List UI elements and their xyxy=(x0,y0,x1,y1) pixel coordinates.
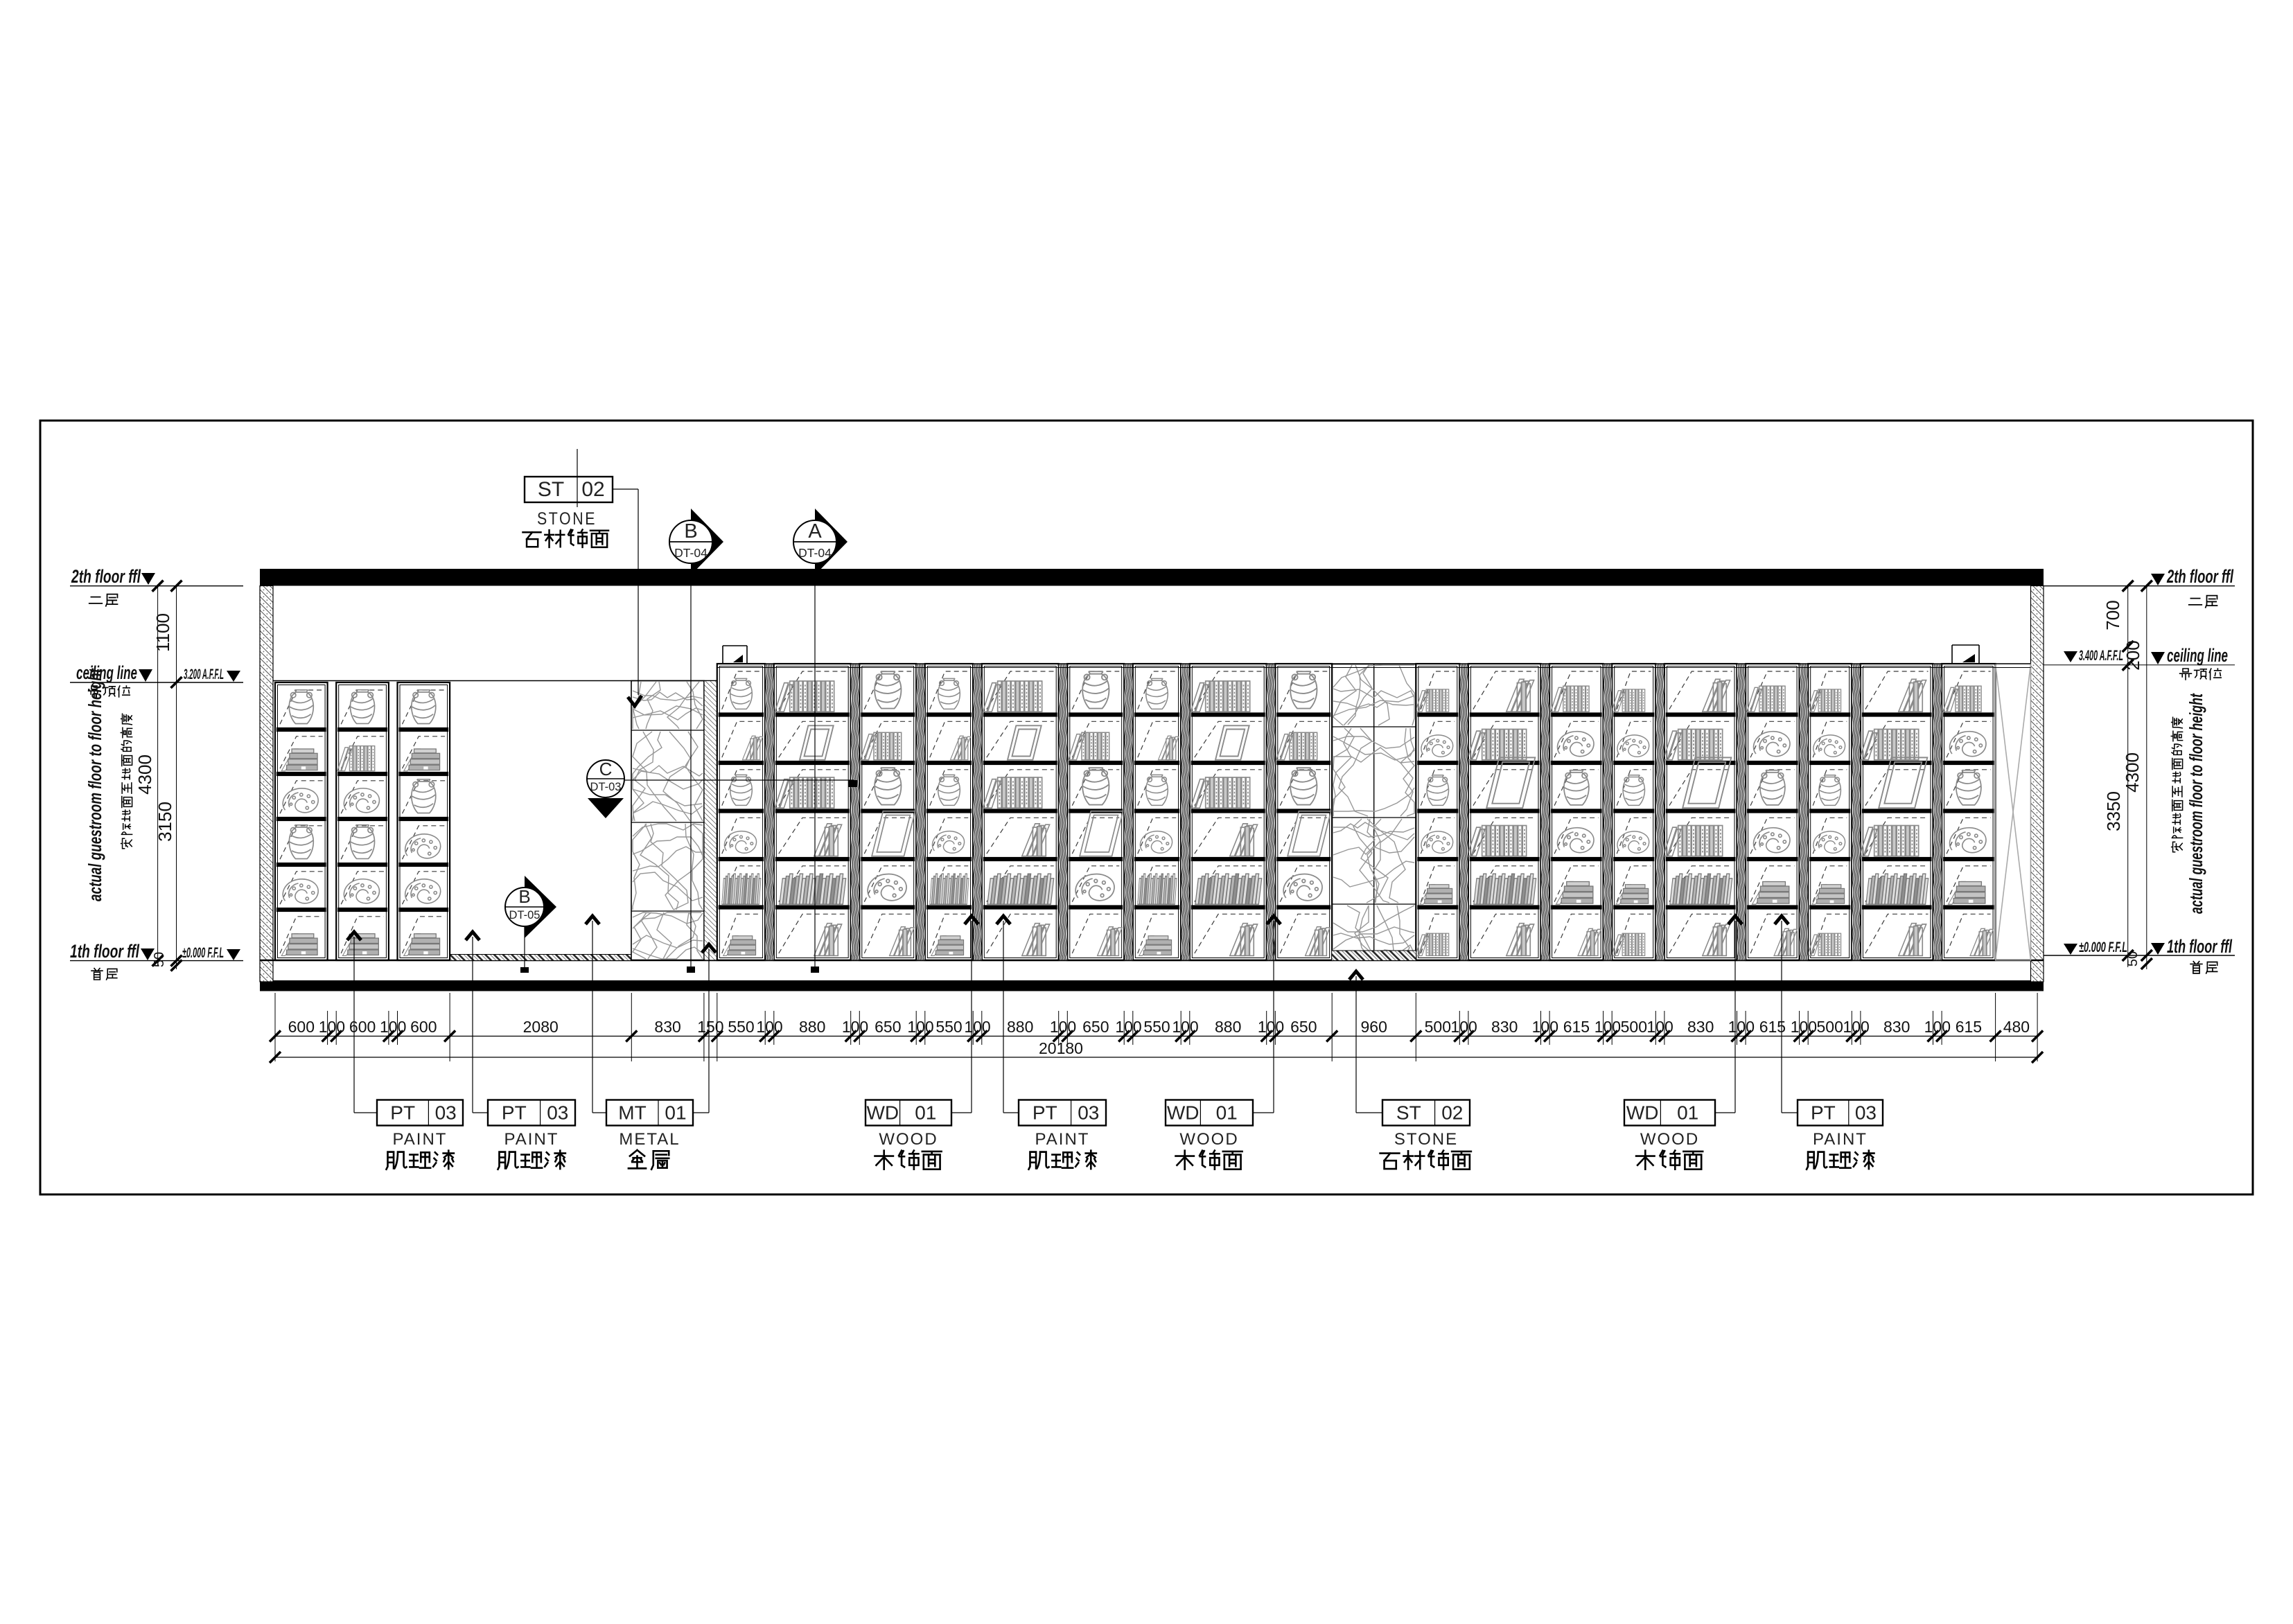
svg-text:880: 880 xyxy=(799,1018,825,1036)
svg-text:03: 03 xyxy=(435,1102,457,1124)
svg-text:600: 600 xyxy=(349,1018,376,1036)
svg-text:100: 100 xyxy=(1924,1018,1951,1036)
svg-text:100: 100 xyxy=(380,1018,406,1036)
svg-text:ST: ST xyxy=(538,478,564,501)
svg-text:02: 02 xyxy=(1441,1102,1463,1124)
svg-text:PT: PT xyxy=(1033,1102,1057,1124)
svg-text:1th floor ffl: 1th floor ffl xyxy=(70,941,139,962)
svg-text:100: 100 xyxy=(1172,1018,1198,1036)
svg-text:METAL: METAL xyxy=(619,1130,680,1149)
svg-text:50: 50 xyxy=(2125,951,2141,967)
svg-text:ST: ST xyxy=(1396,1102,1421,1124)
svg-text:880: 880 xyxy=(1215,1018,1241,1036)
svg-text:4300: 4300 xyxy=(134,754,155,795)
svg-text:2th floor ffl: 2th floor ffl xyxy=(2166,566,2233,587)
svg-text:100: 100 xyxy=(1258,1018,1284,1036)
svg-text:100: 100 xyxy=(1450,1018,1477,1036)
svg-text:960: 960 xyxy=(1361,1018,1387,1036)
svg-text:100: 100 xyxy=(1843,1018,1869,1036)
svg-text:500: 500 xyxy=(1425,1018,1451,1036)
svg-text:DT-05: DT-05 xyxy=(509,909,541,921)
svg-text:615: 615 xyxy=(1759,1018,1786,1036)
svg-text:01: 01 xyxy=(665,1102,686,1124)
svg-text:615: 615 xyxy=(1563,1018,1590,1036)
svg-text:650: 650 xyxy=(875,1018,901,1036)
svg-text:actual guestroom floor to floo: actual guestroom floor to floor height xyxy=(85,668,105,901)
svg-text:2th floor ffl: 2th floor ffl xyxy=(71,566,141,587)
svg-text:03: 03 xyxy=(547,1102,568,1124)
svg-text:100: 100 xyxy=(1532,1018,1558,1036)
svg-text:DT-04: DT-04 xyxy=(674,546,708,560)
svg-text:WD: WD xyxy=(1167,1102,1200,1124)
svg-text:PAINT: PAINT xyxy=(393,1130,448,1149)
svg-text:100: 100 xyxy=(1594,1018,1621,1036)
svg-text:C: C xyxy=(599,759,613,779)
svg-text:700: 700 xyxy=(2102,600,2123,630)
svg-text:4300: 4300 xyxy=(2122,752,2143,793)
svg-text:PT: PT xyxy=(390,1102,415,1124)
svg-text:1100: 1100 xyxy=(152,613,173,652)
svg-text:2080: 2080 xyxy=(523,1018,559,1036)
svg-text:880: 880 xyxy=(1007,1018,1033,1036)
svg-text:100: 100 xyxy=(964,1018,990,1036)
svg-text:500: 500 xyxy=(1817,1018,1843,1036)
svg-text:830: 830 xyxy=(1687,1018,1714,1036)
svg-text:480: 480 xyxy=(2003,1018,2030,1036)
svg-text:WOOD: WOOD xyxy=(879,1130,938,1149)
svg-text:830: 830 xyxy=(654,1018,680,1036)
svg-text:PAINT: PAINT xyxy=(1035,1130,1090,1149)
svg-text:100: 100 xyxy=(1115,1018,1141,1036)
svg-text:100: 100 xyxy=(842,1018,868,1036)
svg-text:01: 01 xyxy=(1216,1102,1238,1124)
svg-text:550: 550 xyxy=(728,1018,754,1036)
svg-text:3350: 3350 xyxy=(2103,791,2124,831)
svg-text:3150: 3150 xyxy=(155,802,175,842)
svg-text:PT: PT xyxy=(502,1102,527,1124)
svg-text:WD: WD xyxy=(1626,1102,1659,1124)
svg-text:100: 100 xyxy=(1050,1018,1076,1036)
svg-text:100: 100 xyxy=(319,1018,345,1036)
svg-text:830: 830 xyxy=(1491,1018,1518,1036)
svg-text:600: 600 xyxy=(288,1018,315,1036)
svg-text:MT: MT xyxy=(618,1102,646,1124)
svg-text:WOOD: WOOD xyxy=(1179,1130,1238,1149)
svg-text:100: 100 xyxy=(1728,1018,1755,1036)
svg-text:WOOD: WOOD xyxy=(1640,1130,1699,1149)
svg-text:±0.000 F.F.L: ±0.000 F.F.L xyxy=(182,945,224,961)
svg-text:B: B xyxy=(518,886,530,907)
svg-text:600: 600 xyxy=(410,1018,437,1036)
svg-text:830: 830 xyxy=(1883,1018,1910,1036)
svg-text:650: 650 xyxy=(1082,1018,1109,1036)
svg-text:650: 650 xyxy=(1290,1018,1317,1036)
svg-text:150: 150 xyxy=(697,1018,723,1036)
svg-text:200: 200 xyxy=(2123,640,2143,670)
svg-text:ceiling line: ceiling line xyxy=(2167,645,2228,666)
svg-text:01: 01 xyxy=(915,1102,936,1124)
svg-text:100: 100 xyxy=(907,1018,933,1036)
svg-text:500: 500 xyxy=(1621,1018,1647,1036)
svg-text:DT-04: DT-04 xyxy=(798,546,832,560)
svg-text:100: 100 xyxy=(1791,1018,1817,1036)
svg-text:03: 03 xyxy=(1078,1102,1099,1124)
svg-text:PT: PT xyxy=(1811,1102,1836,1124)
svg-text:actual guestroom floor to floo: actual guestroom floor to floor height xyxy=(2186,693,2206,914)
svg-text:01: 01 xyxy=(1677,1102,1698,1124)
svg-text:PAINT: PAINT xyxy=(1813,1130,1868,1149)
svg-text:03: 03 xyxy=(1855,1102,1877,1124)
svg-text:02: 02 xyxy=(581,478,604,501)
svg-text:±0.000 F.F.L: ±0.000 F.F.L xyxy=(2079,939,2127,955)
svg-text:50: 50 xyxy=(152,952,167,967)
svg-text:DT-03: DT-03 xyxy=(590,781,622,793)
svg-text:STONE: STONE xyxy=(537,509,597,529)
svg-text:3.400 A.F.F.L: 3.400 A.F.F.L xyxy=(2079,648,2123,664)
svg-text:550: 550 xyxy=(1143,1018,1170,1036)
svg-text:615: 615 xyxy=(1956,1018,1982,1036)
svg-text:3.200 A.F.F.L: 3.200 A.F.F.L xyxy=(184,667,224,682)
svg-text:STONE: STONE xyxy=(1394,1130,1458,1149)
svg-text:20180: 20180 xyxy=(1039,1039,1083,1057)
svg-text:A: A xyxy=(808,520,822,542)
svg-text:100: 100 xyxy=(756,1018,782,1036)
svg-text:B: B xyxy=(684,520,697,542)
svg-text:100: 100 xyxy=(1646,1018,1673,1036)
svg-text:PAINT: PAINT xyxy=(504,1130,559,1149)
svg-text:550: 550 xyxy=(935,1018,962,1036)
svg-text:WD: WD xyxy=(866,1102,899,1124)
svg-text:1th floor ffl: 1th floor ffl xyxy=(2167,936,2232,957)
